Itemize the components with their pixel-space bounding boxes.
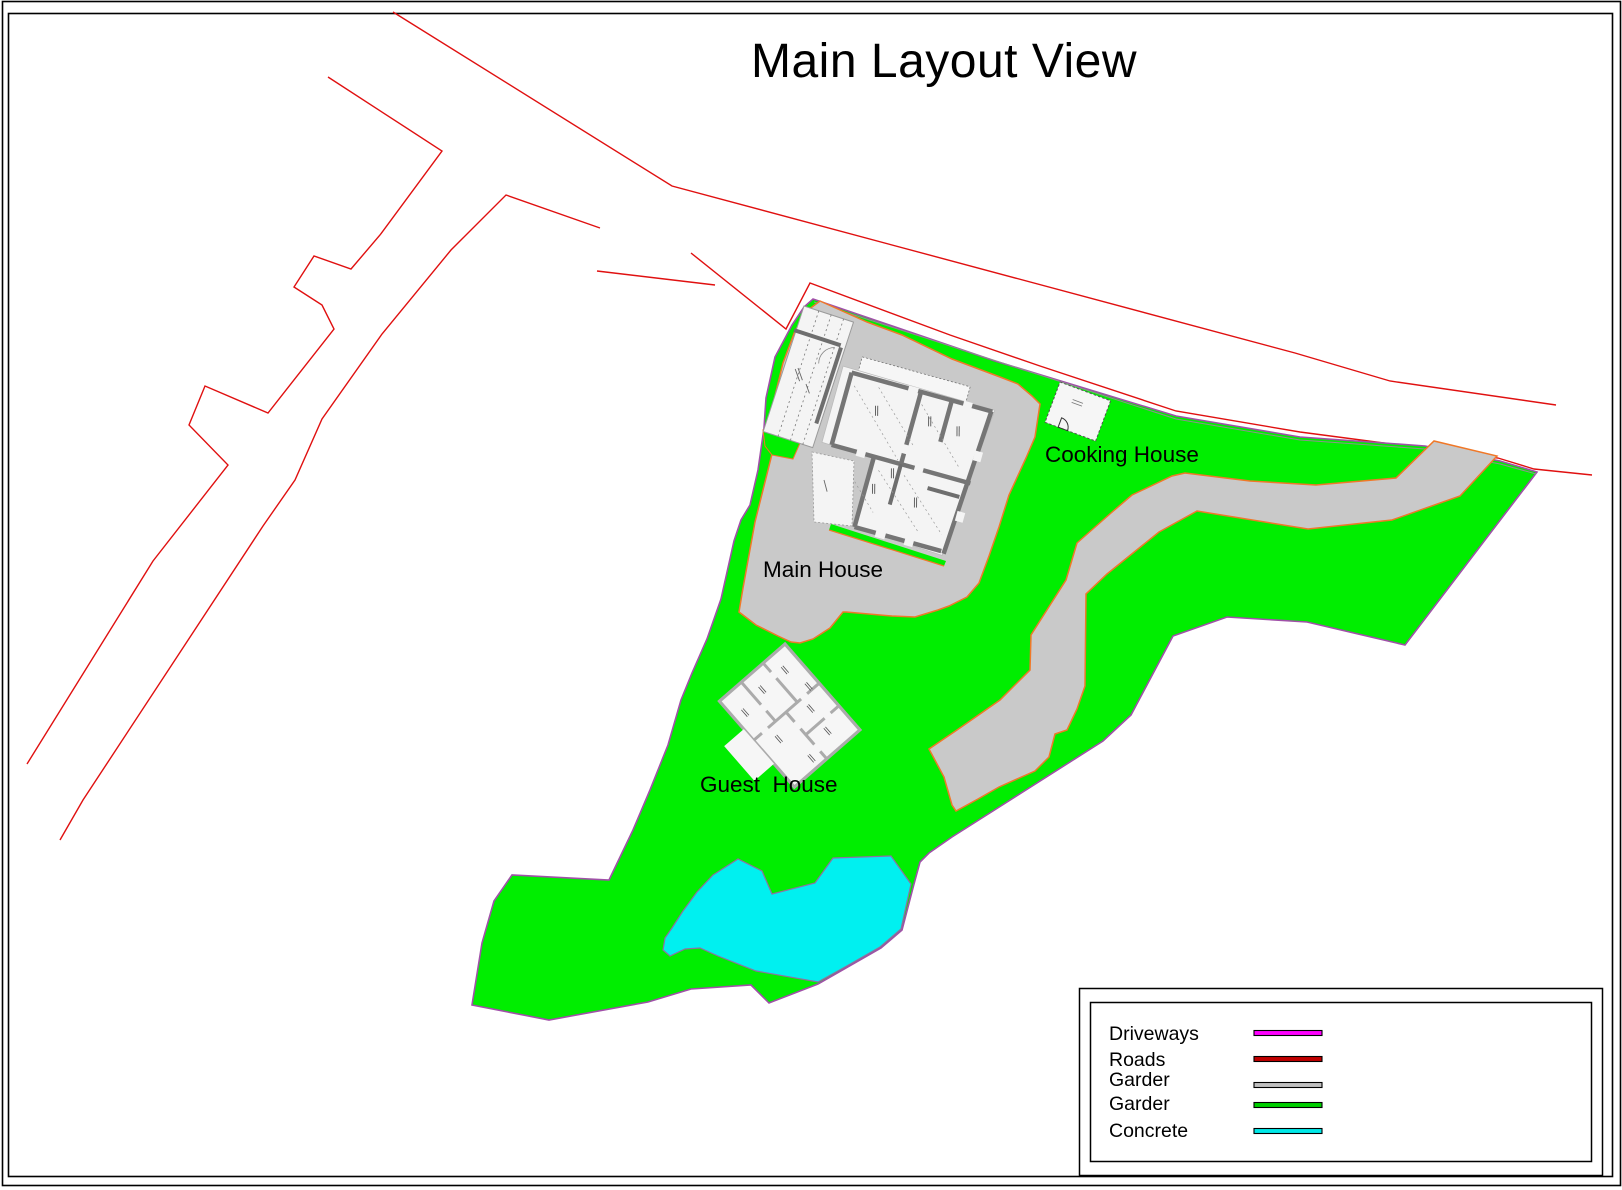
svg-text:Cooking House: Cooking House <box>1045 442 1199 467</box>
svg-text:Guest House: Guest House <box>700 772 838 797</box>
svg-text:Concrete: Concrete <box>1109 1120 1188 1142</box>
svg-text:Driveways: Driveways <box>1109 1023 1199 1045</box>
svg-text:Roads: Roads <box>1109 1049 1166 1071</box>
svg-text:Main Layout View: Main Layout View <box>751 35 1137 88</box>
svg-text:Garder: Garder <box>1109 1093 1170 1115</box>
svg-text:Garder: Garder <box>1109 1069 1170 1091</box>
svg-text:Main House: Main House <box>763 557 883 582</box>
